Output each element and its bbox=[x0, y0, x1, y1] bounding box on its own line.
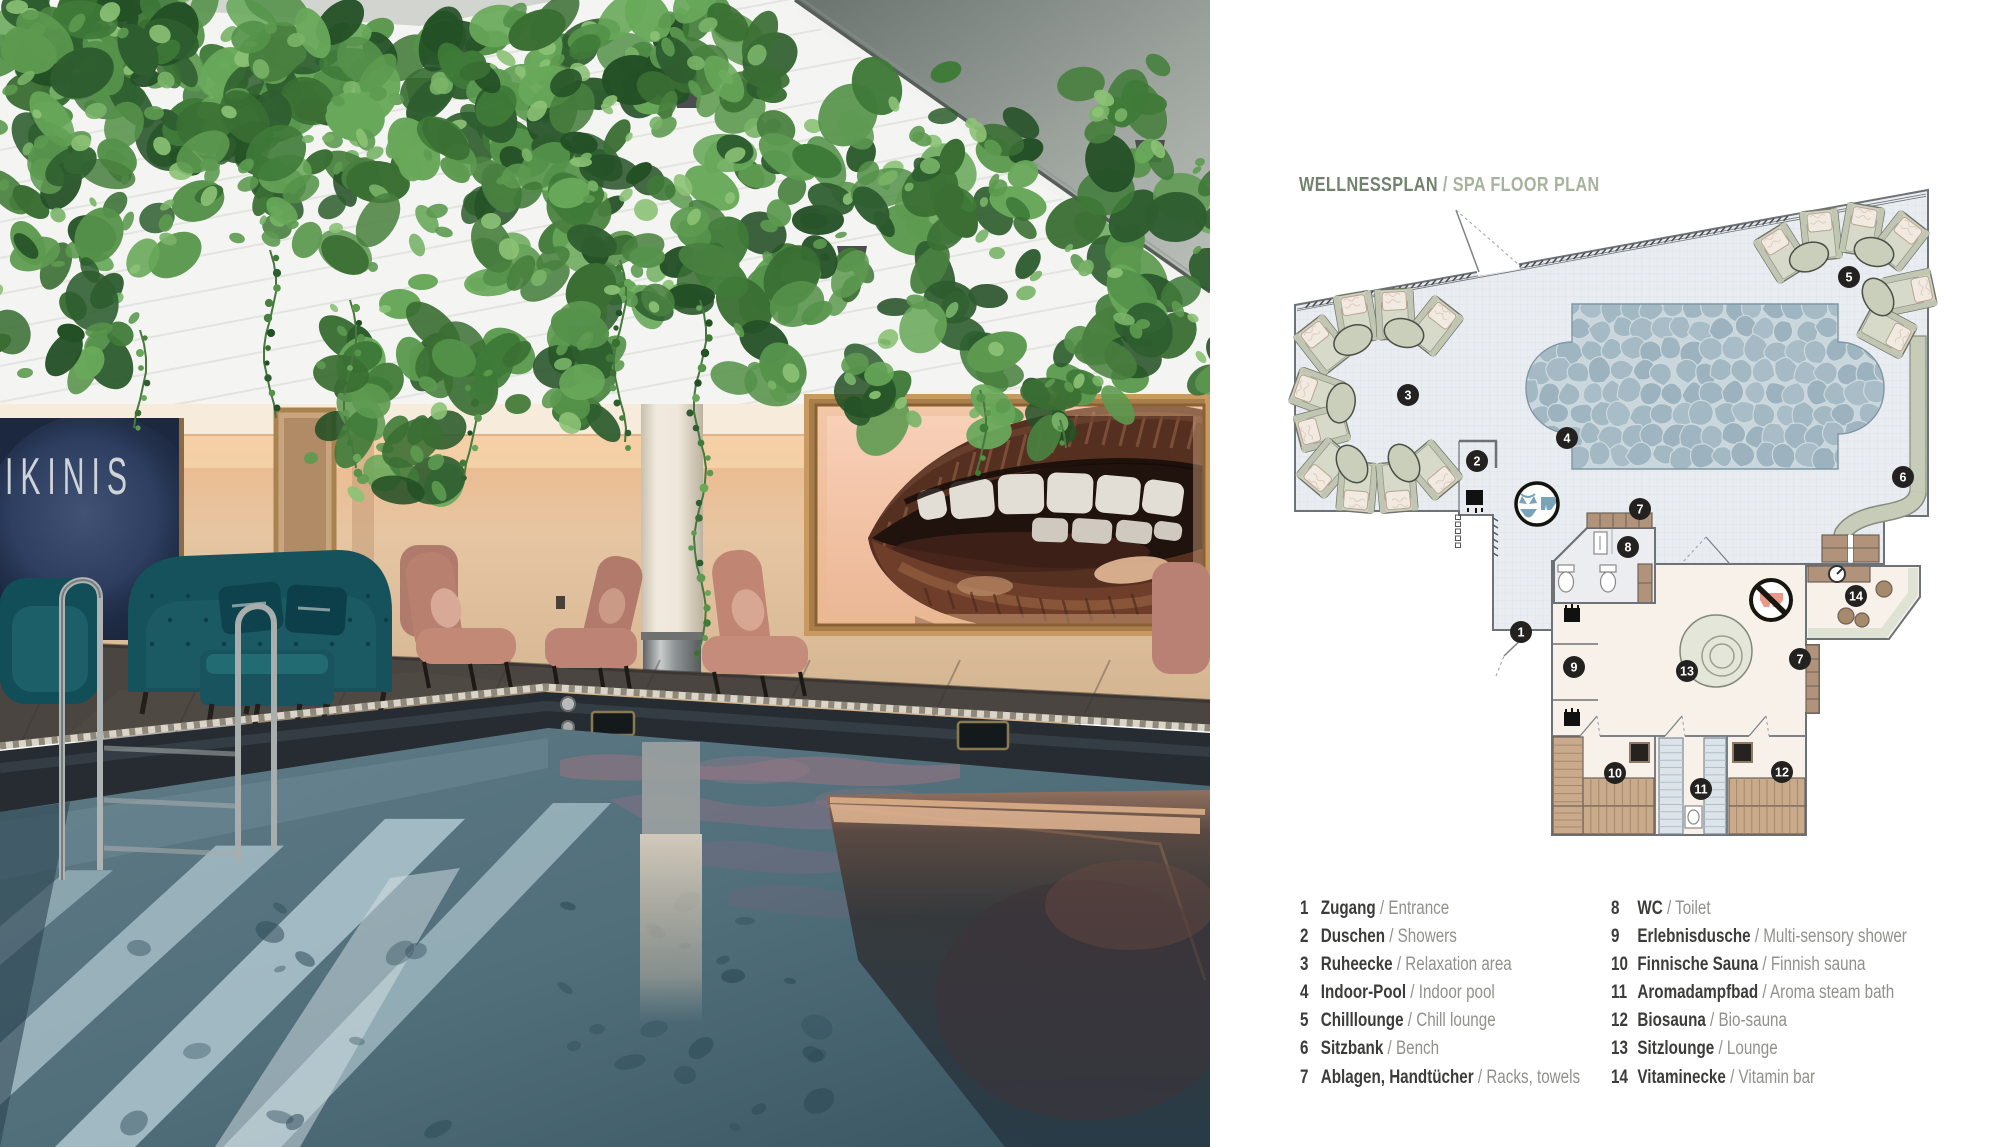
svg-text:9: 9 bbox=[1571, 661, 1578, 675]
svg-text:2: 2 bbox=[1474, 455, 1481, 469]
svg-text:7: 7 bbox=[1797, 653, 1804, 667]
svg-text:IKINIS: IKINIS bbox=[5, 449, 134, 506]
svg-text:1: 1 bbox=[1518, 626, 1525, 640]
svg-text:6: 6 bbox=[1900, 471, 1907, 485]
svg-text:11: 11 bbox=[1694, 783, 1707, 797]
svg-text:10: 10 bbox=[1608, 767, 1622, 781]
svg-text:12: 12 bbox=[1775, 766, 1789, 780]
svg-text:3: 3 bbox=[1405, 389, 1412, 403]
svg-text:13: 13 bbox=[1680, 665, 1694, 679]
svg-text:5: 5 bbox=[1846, 271, 1853, 285]
svg-text:4: 4 bbox=[1564, 432, 1571, 446]
svg-text:8: 8 bbox=[1625, 541, 1632, 555]
svg-text:14: 14 bbox=[1849, 590, 1863, 604]
svg-text:7: 7 bbox=[1637, 503, 1644, 517]
